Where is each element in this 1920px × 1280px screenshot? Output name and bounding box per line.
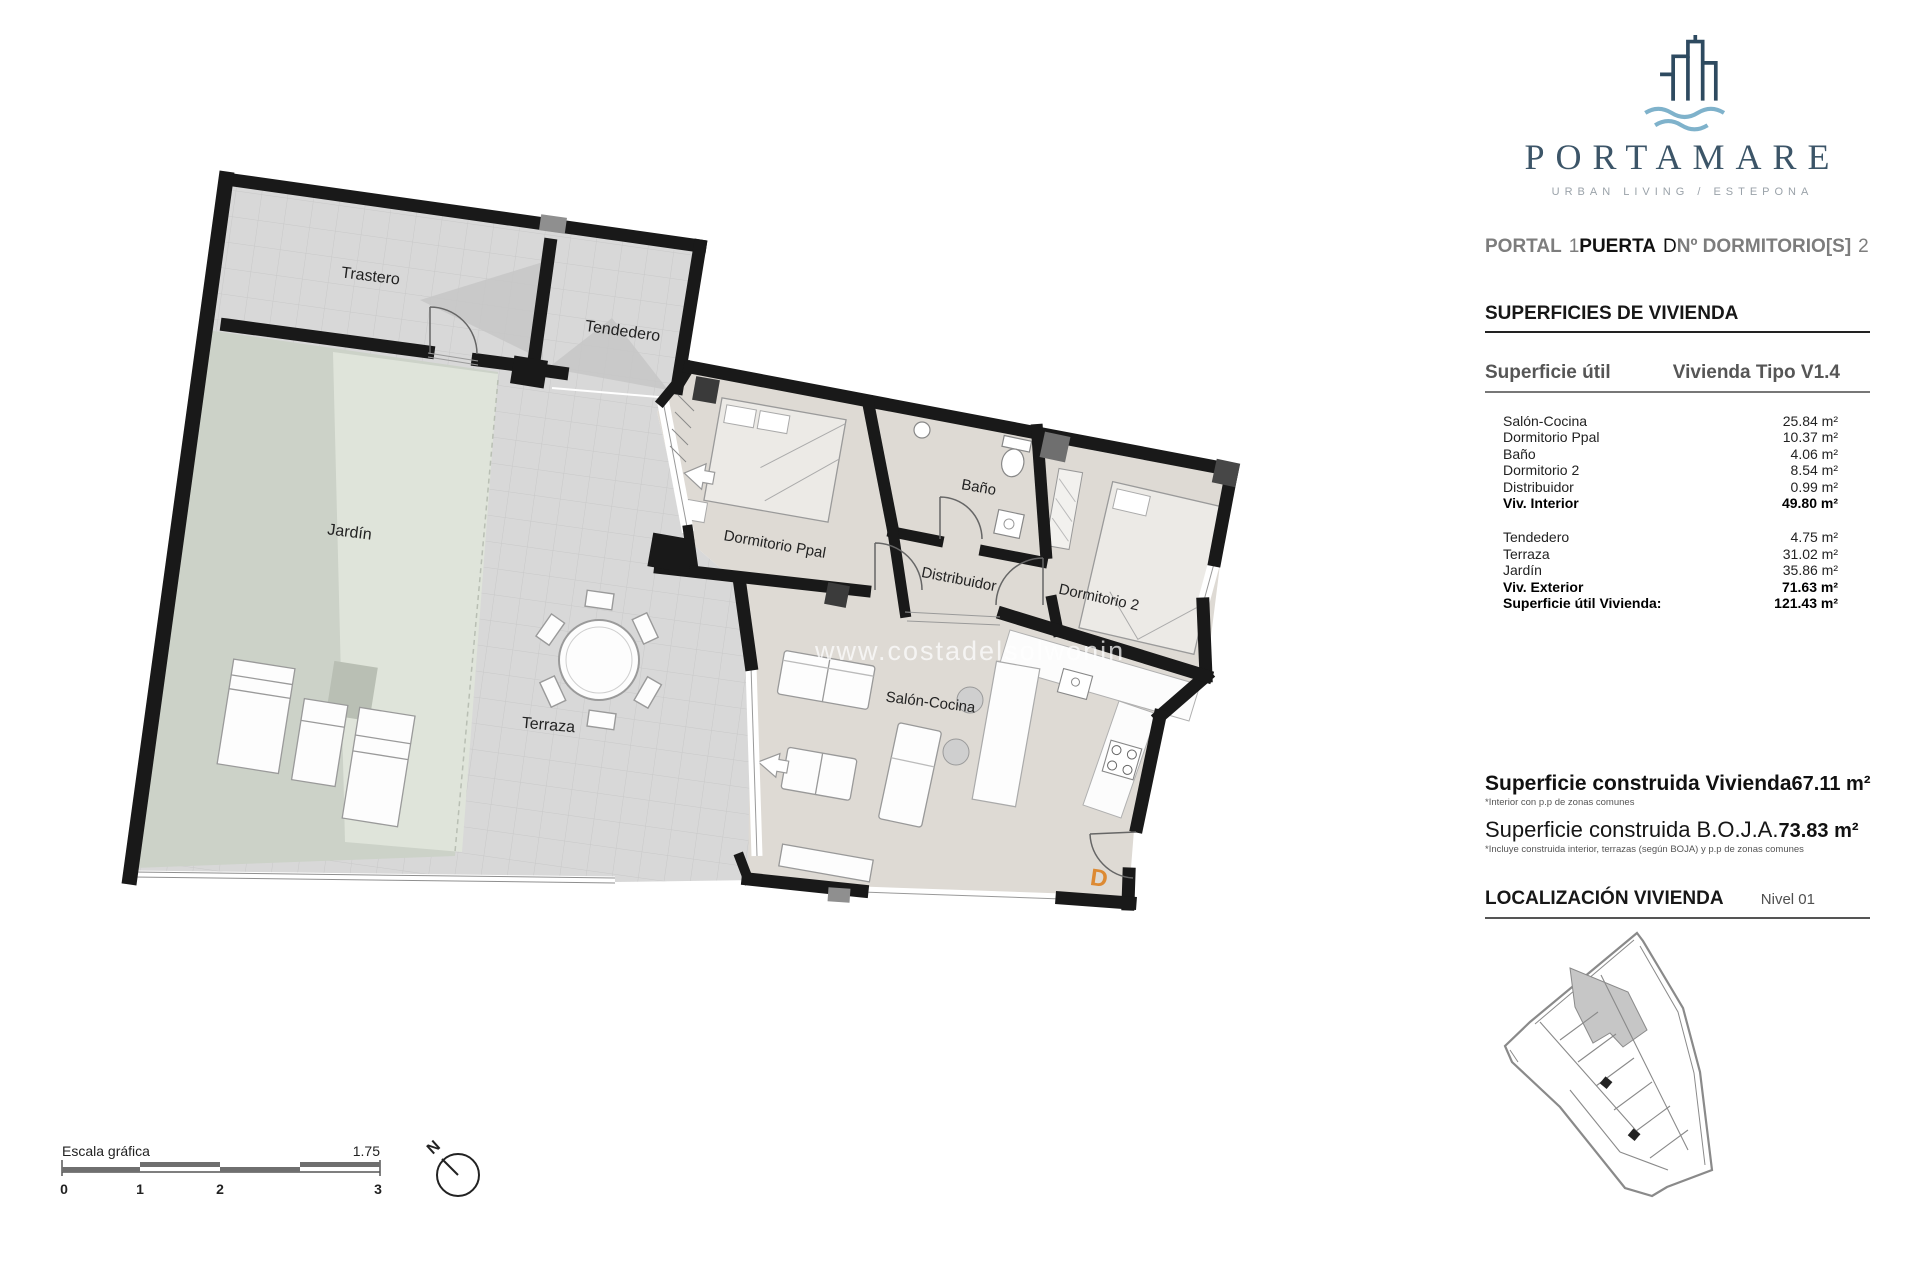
- row-label: Dormitorio Ppal: [1503, 429, 1599, 445]
- row-value: 10.37 m²: [1783, 429, 1838, 445]
- watermark: www.costadelsolwonin: [814, 636, 1125, 666]
- brand-name: PORTAMARE: [1510, 136, 1855, 178]
- localizacion-header: LOCALIZACIÓN VIVIENDA Nivel 01: [1485, 888, 1870, 919]
- superficies-table: Salón-Cocina25.84 m² Dormitorio Ppal10.3…: [1503, 413, 1838, 611]
- scale-bar: Escala gráfica 1.75 0 1 2 3: [60, 1143, 382, 1197]
- shower-head: [914, 422, 930, 438]
- row-label: Superficie útil Vivienda:: [1503, 595, 1661, 611]
- puerta-value: D: [1663, 236, 1677, 257]
- construida-vivienda-row: Superficie construida Vivienda 67.11 m²: [1485, 772, 1838, 796]
- dormitorios-field: Nº DORMITORIO[S]2: [1677, 236, 1869, 258]
- brand-tagline: URBAN LIVING / ESTEPONA: [1510, 186, 1855, 198]
- portal-field: PORTAL1: [1485, 236, 1579, 258]
- row-label: Viv. Interior: [1503, 495, 1579, 511]
- superficie-util-header: Superficie útil Vivienda Tipo V1.4: [1485, 362, 1870, 393]
- construida-boja-label: Superficie construida B.O.J.A.: [1485, 817, 1778, 843]
- nivel-label: Nivel 01: [1761, 891, 1870, 908]
- row-label: Viv. Exterior: [1503, 579, 1583, 595]
- scale-tick-0: 0: [60, 1181, 68, 1197]
- table-row: Baño4.06 m²: [1503, 446, 1838, 462]
- row-label: Tendedero: [1503, 529, 1569, 545]
- row-label: Terraza: [1503, 546, 1550, 562]
- scale-bar-label: Escala gráfica: [62, 1143, 150, 1159]
- table-row: Jardín35.86 m²: [1503, 562, 1838, 578]
- row-value: 71.63 m²: [1782, 579, 1838, 595]
- table-row-total: Viv. Exterior71.63 m²: [1503, 579, 1838, 595]
- row-value: 49.80 m²: [1782, 495, 1838, 511]
- table-row: Dormitorio Ppal10.37 m²: [1503, 429, 1838, 445]
- row-value: 25.84 m²: [1783, 413, 1838, 429]
- location-minimap: [1505, 933, 1712, 1196]
- portal-label: PORTAL: [1485, 236, 1562, 257]
- construida-vivienda-note: *Interior con p.p de zonas comunes: [1485, 797, 1838, 808]
- puerta-field: PUERTAD: [1579, 236, 1676, 258]
- table-row-grand-total: Superficie útil Vivienda:121.43 m²: [1503, 595, 1838, 611]
- portal-value: 1: [1569, 236, 1580, 257]
- row-label: Distribuidor: [1503, 479, 1574, 495]
- apartment-plan: Trastero Tendedero Jardín Terraza Dormit…: [130, 179, 1240, 906]
- dormitorios-label: Nº DORMITORIO[S]: [1677, 236, 1851, 257]
- stool: [943, 739, 969, 765]
- puerta-label: PUERTA: [1579, 236, 1656, 257]
- row-value: 4.75 m²: [1791, 529, 1838, 545]
- floorplan-sheet: Trastero Tendedero Jardín Terraza Dormit…: [0, 0, 1920, 1280]
- row-label: Jardín: [1503, 562, 1542, 578]
- localizacion-title: LOCALIZACIÓN VIVIENDA: [1485, 888, 1724, 910]
- superficies-title: SUPERFICIES DE VIVIENDA: [1485, 303, 1870, 333]
- construida-boja-row: Superficie construida B.O.J.A. 73.83 m²: [1485, 817, 1838, 843]
- construida-boja-value: 73.83 m²: [1778, 820, 1858, 843]
- north-compass: N: [424, 1138, 479, 1196]
- scale-tick-3: 3: [374, 1181, 382, 1197]
- construida-vivienda-label: Superficie construida Vivienda: [1485, 772, 1792, 796]
- row-label: Salón-Cocina: [1503, 413, 1587, 429]
- construida-vivienda-value: 67.11 m²: [1792, 773, 1871, 796]
- row-label: Baño: [1503, 446, 1536, 462]
- table-row-total: Viv. Interior49.80 m²: [1503, 495, 1838, 511]
- row-value: 31.02 m²: [1783, 546, 1838, 562]
- row-value: 121.43 m²: [1774, 595, 1838, 611]
- vivienda-tipo: Vivienda Tipo V1.4: [1673, 362, 1870, 384]
- table-row: Distribuidor0.99 m²: [1503, 479, 1838, 495]
- table-row: Salón-Cocina25.84 m²: [1503, 413, 1838, 429]
- bath-sink: [994, 510, 1024, 539]
- unit-header: PORTAL1 PUERTAD Nº DORMITORIO[S]2: [1485, 236, 1857, 258]
- table-row: Terraza31.02 m²: [1503, 546, 1838, 562]
- row-value: 0.99 m²: [1791, 479, 1838, 495]
- row-value: 35.86 m²: [1783, 562, 1838, 578]
- north-label: N: [424, 1138, 444, 1158]
- table-row: Dormitorio 28.54 m²: [1503, 462, 1838, 478]
- row-value: 8.54 m²: [1791, 462, 1838, 478]
- row-value: 4.06 m²: [1791, 446, 1838, 462]
- superficie-util-label: Superficie útil: [1485, 362, 1611, 384]
- row-label: Dormitorio 2: [1503, 462, 1579, 478]
- logo: PORTAMARE URBAN LIVING / ESTEPONA: [1510, 30, 1855, 198]
- dormitorios-value: 2: [1858, 236, 1869, 257]
- wall-corner: [647, 533, 694, 574]
- superficie-construida: Superficie construida Vivienda 67.11 m² …: [1485, 772, 1838, 855]
- table-row: Tendedero4.75 m²: [1503, 529, 1838, 545]
- scale-ratio: 1.75: [353, 1143, 380, 1159]
- scale-tick-1: 1: [136, 1181, 144, 1197]
- scale-tick-2: 2: [216, 1181, 224, 1197]
- construida-boja-note: *Incluye construida interior, terrazas (…: [1485, 844, 1838, 855]
